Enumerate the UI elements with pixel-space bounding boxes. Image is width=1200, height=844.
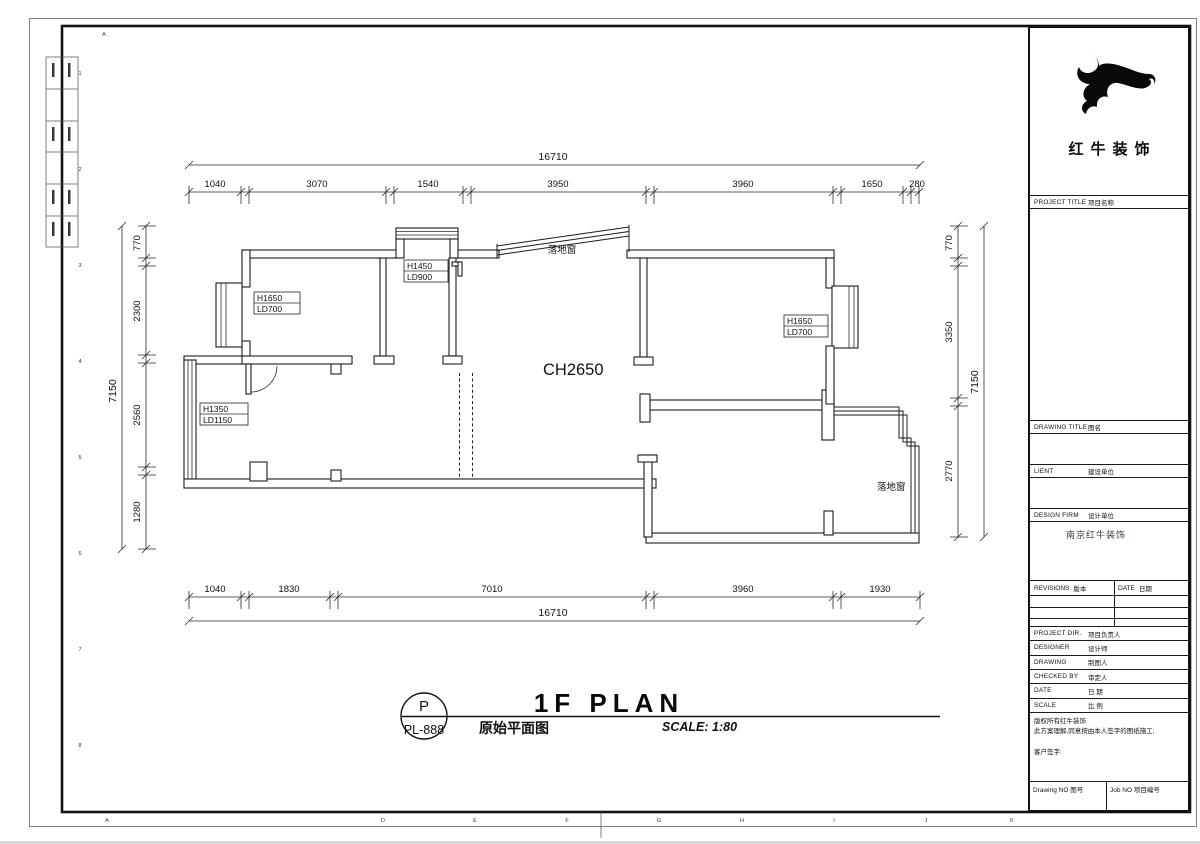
dim-label: 1280 — [132, 501, 143, 522]
tb-field-row: SCALE比 例 — [1030, 698, 1188, 712]
ceiling-height-label: CH2650 — [543, 361, 604, 379]
grid-number: 8 — [78, 743, 81, 749]
job-no-cell: Job NO 项目编号 — [1107, 782, 1188, 810]
floor-window-top-label: 落地窗 — [548, 244, 577, 256]
dim-label: 1040 — [204, 179, 225, 190]
grid-letter: J — [925, 818, 928, 824]
grid-number: 5 — [78, 455, 81, 461]
tb-field-row: DATE日 期 — [1030, 683, 1188, 697]
dim-label: 2560 — [132, 404, 143, 425]
svg-text:H1650: H1650 — [787, 316, 812, 326]
plan-title: 1F PLAN — [534, 688, 684, 718]
drawing-no-cell: Drawing NO 图号 — [1030, 782, 1107, 810]
grid-letter: I — [833, 818, 835, 824]
tb-field-row: PROJECT DIR.项目负责人 — [1030, 626, 1188, 640]
sheet-frame — [0, 19, 1200, 844]
svg-text:16710: 16710 — [538, 607, 567, 619]
dim-label: 1040 — [204, 584, 225, 595]
floor-window-right-label: 落地窗 — [877, 481, 906, 493]
grid-letter: G — [657, 818, 661, 824]
window-left-top — [216, 283, 242, 347]
window-tag: H1450 LD900 — [404, 260, 448, 282]
window-tag: H1350 LD1150 — [200, 403, 248, 425]
dim-label: 3350 — [944, 321, 955, 342]
tb-client-row: LIENT 建设单位 — [1030, 464, 1188, 478]
tb-field-row: CHECKED BY审定人 — [1030, 669, 1188, 683]
svg-text:7150: 7150 — [107, 379, 119, 403]
window-tag: H1650 LD700 — [784, 315, 828, 337]
dim-label: 1540 — [417, 179, 438, 190]
dim-label: 3070 — [306, 179, 327, 190]
drawing-sheet: A A D E F G H I J K 1 2 3 4 5 6 7 8 1 2 … — [0, 0, 1200, 844]
tb-project-title-row: PROJECT TITLE 项目名称 — [1030, 195, 1188, 209]
redbull-logo-icon — [1063, 46, 1159, 124]
svg-text:16710: 16710 — [538, 151, 567, 163]
grid-letter: A — [105, 818, 109, 824]
grid-number: 3 — [78, 263, 81, 269]
dim-label: 280 — [909, 179, 925, 190]
grid-letter: F — [565, 818, 569, 824]
dim-label: 2300 — [132, 300, 143, 321]
door-swing — [246, 364, 277, 394]
dim-label: 770 — [944, 235, 955, 251]
grid-letter: E — [473, 818, 477, 824]
tb-number-row: Drawing NO 图号 Job NO 项目编号 — [1030, 781, 1188, 810]
grid-letter: H — [740, 818, 744, 824]
dim-label: 1650 — [861, 179, 882, 190]
revision-empty-row — [1030, 608, 1188, 620]
drawing-title-bar: P PL-888 1F PLAN 原始平面图 SCALE: 1:80 — [401, 688, 940, 739]
window-tag: H1650 LD700 — [254, 292, 300, 314]
dim-label: 1830 — [278, 584, 299, 595]
tb-drawing-title-row: DRAWING TITLE 图名 — [1030, 420, 1188, 434]
dim-label: 2770 — [944, 460, 955, 481]
grid-number: 4 — [78, 359, 81, 365]
svg-text:H1650: H1650 — [257, 293, 282, 303]
dim-label: 3950 — [547, 179, 568, 190]
tb-field-row: DRAWING制图人 — [1030, 655, 1188, 669]
svg-text:H1450: H1450 — [407, 261, 432, 271]
dim-label: 1930 — [869, 584, 890, 595]
grid-letter: D — [381, 818, 385, 824]
window-right — [832, 286, 858, 348]
customer-signature-label: 客户签字: — [1034, 748, 1184, 758]
dim-label: 3960 — [732, 584, 753, 595]
grid-number: 2 — [78, 167, 81, 173]
window-left-bottom — [184, 360, 196, 482]
dimension-top: 16710 1040 3070 1540 3950 3960 1650 280 — [185, 151, 925, 204]
grid-number: 6 — [78, 551, 81, 557]
floorplan-walls — [184, 225, 919, 543]
grid-letter: A — [102, 32, 106, 38]
grid-letter: K — [1010, 818, 1014, 824]
dim-label: 770 — [132, 235, 143, 251]
grid-number: 1 — [78, 71, 81, 77]
dim-ticks-right — [950, 222, 968, 541]
svg-text:LD700: LD700 — [787, 327, 812, 337]
dimension-bottom: 1040 1830 7010 3960 1930 16710 — [185, 584, 924, 625]
tb-fields: PROJECT DIR.项目负责人 DESIGNER设计师 DRAWING制图人… — [1030, 626, 1188, 712]
svg-text:H1350: H1350 — [203, 404, 228, 414]
brand-name: 红牛装饰 — [1030, 138, 1188, 159]
dimension-left: 770 2300 2560 1280 7150 — [107, 222, 156, 553]
dim-label: 7010 — [481, 584, 502, 595]
plan-scale: SCALE: 1:80 — [662, 720, 737, 734]
dimension-right: 770 3350 2770 7150 — [944, 222, 988, 541]
badge-number: PL-888 — [404, 723, 444, 737]
plan-canvas: A A D E F G H I J K 1 2 3 4 5 6 7 8 1 2 … — [0, 0, 1200, 844]
revision-empty-row — [1030, 596, 1188, 608]
tb-revisions-table: REVISIONS 版本 DATE 日期 — [1030, 580, 1188, 626]
svg-text:LD900: LD900 — [407, 272, 432, 282]
floor-window-right — [834, 407, 919, 535]
plan-labels: 落地窗 落地窗 CH2650 — [543, 244, 906, 493]
plan-title-cn: 原始平面图 — [479, 720, 549, 736]
tb-design-firm-row: DESIGN FIRM 设计单位 — [1030, 508, 1188, 522]
badge-letter: P — [419, 698, 429, 715]
svg-text:LD1150: LD1150 — [203, 415, 232, 425]
tb-field-row: DESIGNER设计师 — [1030, 640, 1188, 654]
tb-copyright-notes: 版权所有红牛装饰 此方案理解,同意按由本人签字的图纸施工: 客户签字: — [1030, 712, 1188, 781]
svg-text:LD700: LD700 — [257, 304, 282, 314]
dim-label: 3960 — [732, 179, 753, 190]
title-block: 红牛装饰 PROJECT TITLE 项目名称 DRAWING TITLE 图名… — [1028, 26, 1190, 812]
grid-number: 7 — [78, 647, 81, 653]
svg-text:7150: 7150 — [969, 370, 981, 394]
design-firm-value: 南京红牛装饰 — [1066, 528, 1126, 541]
